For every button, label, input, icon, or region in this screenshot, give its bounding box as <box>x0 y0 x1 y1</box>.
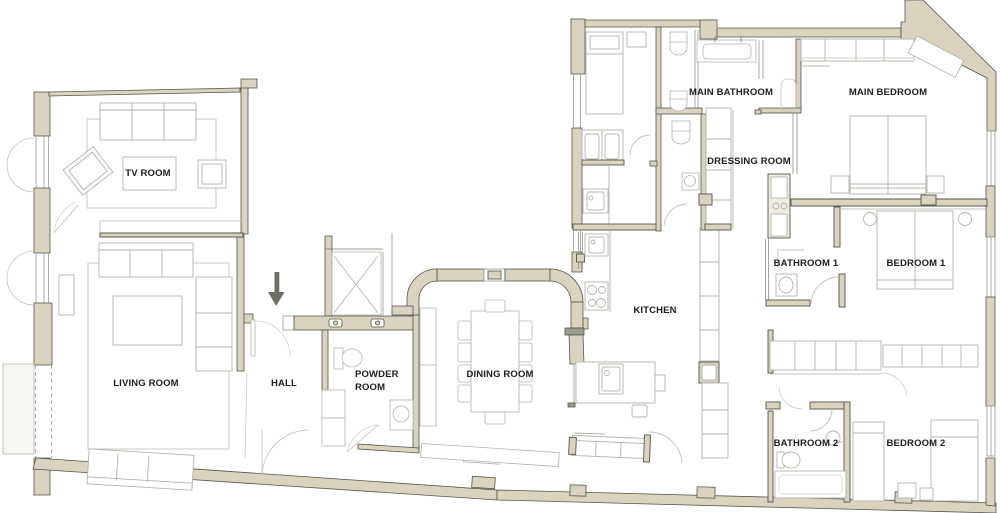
svg-text:LIVING ROOM: LIVING ROOM <box>113 378 179 389</box>
svg-text:KITCHEN: KITCHEN <box>633 305 676 316</box>
svg-text:MAIN BATHROOM: MAIN BATHROOM <box>689 87 773 98</box>
svg-text:BEDROOM 2: BEDROOM 2 <box>887 438 946 449</box>
svg-text:BATHROOM 1: BATHROOM 1 <box>774 258 839 269</box>
svg-text:POWDER: POWDER <box>355 369 399 380</box>
svg-text:HALL: HALL <box>271 378 297 389</box>
svg-text:MAIN BEDROOM: MAIN BEDROOM <box>849 87 927 98</box>
svg-text:BATHROOM 2: BATHROOM 2 <box>774 438 839 449</box>
svg-text:DRESSING ROOM: DRESSING ROOM <box>707 156 791 167</box>
svg-text:BEDROOM 1: BEDROOM 1 <box>887 258 946 269</box>
svg-text:DINING ROOM: DINING ROOM <box>466 369 533 380</box>
svg-text:ROOM: ROOM <box>355 382 385 393</box>
svg-text:TV ROOM: TV ROOM <box>125 168 170 179</box>
